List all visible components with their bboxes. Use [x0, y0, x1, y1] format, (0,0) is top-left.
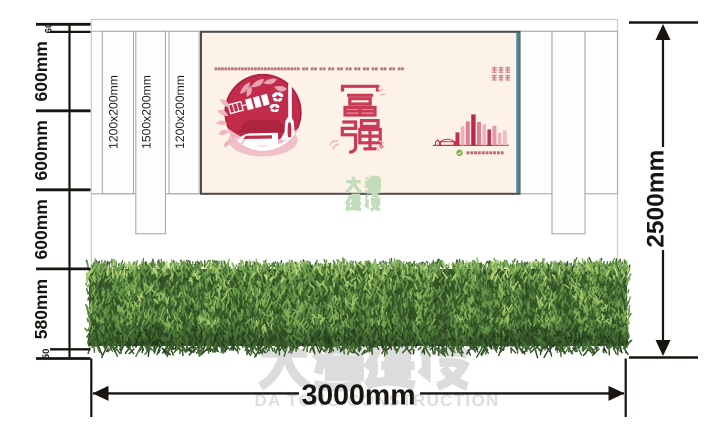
- svg-text:2500mm: 2500mm: [643, 150, 670, 248]
- svg-text:1200x200mm: 1200x200mm: [173, 75, 187, 149]
- svg-text:50: 50: [41, 349, 52, 360]
- svg-text:600mm: 600mm: [31, 199, 51, 259]
- svg-text:600mm: 600mm: [31, 120, 51, 180]
- svg-text:580mm: 580mm: [31, 279, 51, 339]
- svg-text:600mm: 600mm: [31, 41, 51, 101]
- svg-text:60: 60: [44, 23, 55, 34]
- svg-text:1200x200mm: 1200x200mm: [107, 75, 121, 149]
- svg-text:1500x200mm: 1500x200mm: [139, 75, 153, 149]
- svg-text:3000mm: 3000mm: [301, 380, 415, 412]
